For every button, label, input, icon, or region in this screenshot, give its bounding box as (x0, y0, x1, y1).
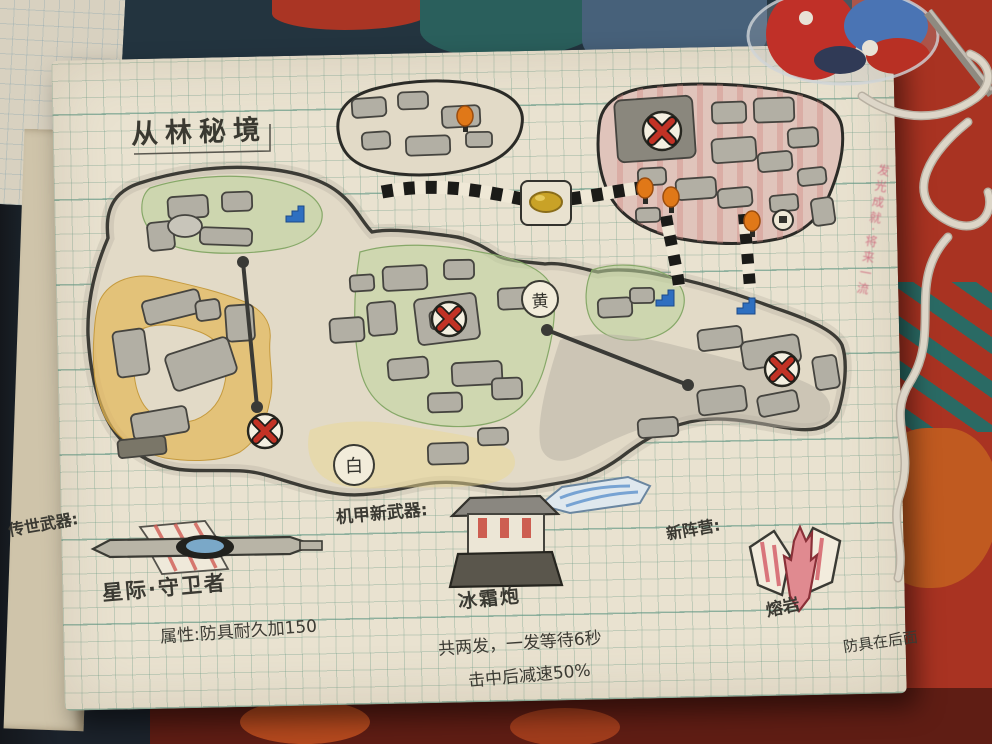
map-title: 从林秘境 (131, 116, 268, 150)
top-center-island (338, 81, 523, 175)
small-circle-icon (773, 210, 793, 230)
rifle-drawing (93, 521, 322, 574)
white-point-label: 白 (345, 452, 364, 479)
gold-marker (521, 181, 571, 225)
white-cables (862, 54, 990, 578)
pencil (928, 10, 992, 94)
photo-of-hand-drawn-game-map: { "page": { "title": "从林秘境", "markers": … (0, 0, 992, 744)
yellow-point-label: 黄 (531, 286, 549, 312)
frost-cannon-drawing (450, 477, 650, 587)
glass-cup (748, 0, 940, 84)
